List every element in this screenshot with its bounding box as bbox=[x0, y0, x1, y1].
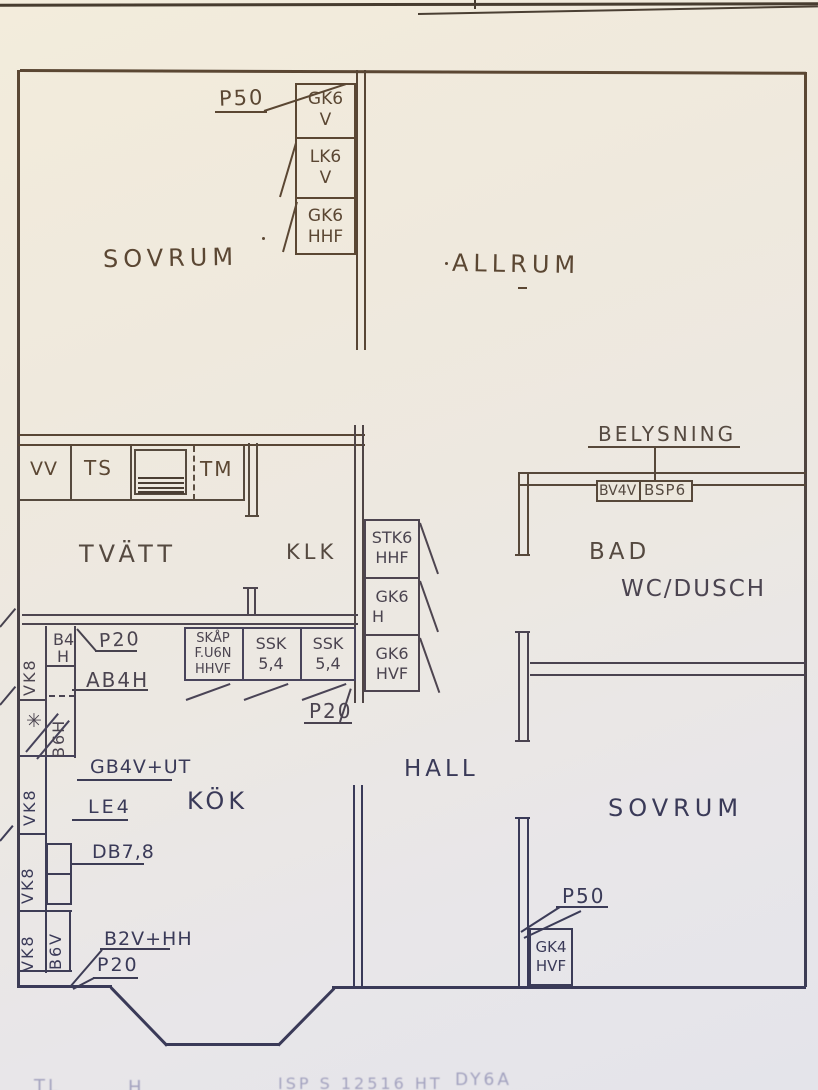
footer-fragment: ISP S 12516 HT bbox=[278, 1074, 443, 1090]
code-vk8-4: VK8 bbox=[20, 916, 36, 972]
counter-edge bbox=[22, 623, 358, 625]
circuit-code-bv4v: BV4V bbox=[599, 484, 636, 498]
wall-sovrum-allrum bbox=[364, 70, 366, 350]
cabinet-code: HHF bbox=[308, 227, 343, 248]
cell-border-dashed bbox=[49, 695, 75, 699]
leader-line bbox=[419, 523, 439, 575]
wall-outer-bottom bbox=[19, 985, 112, 988]
leader-line bbox=[76, 628, 97, 651]
note-underline bbox=[588, 446, 740, 448]
wall-outer-top bbox=[20, 69, 806, 74]
callout-underline bbox=[95, 650, 137, 652]
room-label-hall: HALL bbox=[404, 758, 479, 781]
callout-p20-top-left: P20 bbox=[99, 630, 142, 651]
callout-underline bbox=[100, 948, 170, 950]
cabinet-gk6-hvf: GK6 HVF bbox=[366, 638, 418, 690]
callout-underline bbox=[304, 722, 352, 724]
cabinet-lk6-v: LK6 V bbox=[297, 141, 354, 195]
cabinet-code: V bbox=[320, 168, 332, 189]
vent-stub-cap bbox=[243, 587, 258, 589]
column-border bbox=[45, 626, 47, 756]
cabinet-gk6-h: GK6 H bbox=[366, 581, 418, 632]
vent-stub bbox=[254, 589, 256, 616]
cabinet-gk4-hvf: GK4 HVF bbox=[529, 928, 573, 986]
callout-gb4v-ut: GB4V+UT bbox=[90, 758, 191, 777]
cabinet-code: 5,4 bbox=[315, 654, 340, 674]
cabinet-ssk-1: SSK 5,4 bbox=[244, 629, 298, 679]
cell-border bbox=[20, 833, 47, 835]
cabinet-code: HHF bbox=[375, 548, 408, 568]
paper-edge-tick bbox=[474, 0, 476, 9]
wall-stub bbox=[527, 472, 529, 556]
code-b4-h: H bbox=[57, 649, 69, 665]
room-label-kok: KÖK bbox=[187, 789, 248, 813]
wall-stub bbox=[527, 632, 529, 742]
callout-p50-bottom: P50 bbox=[562, 886, 606, 906]
wall-stub-cap bbox=[515, 631, 530, 633]
cabinet-code: GK6 bbox=[308, 89, 343, 110]
wall-stub-cap bbox=[245, 515, 259, 517]
code-b6v: B6V bbox=[48, 916, 64, 970]
cabinet-code: HVF bbox=[536, 957, 566, 976]
callout-p20-bottom-left: P20 bbox=[97, 956, 139, 975]
wall-stub-cap bbox=[515, 740, 530, 742]
cabinet-code: SKÅP bbox=[196, 631, 230, 647]
wall-stub bbox=[256, 443, 258, 517]
cabinet-code: SSK bbox=[313, 634, 344, 654]
code-b6h: B6H bbox=[51, 704, 67, 758]
hatch-mark bbox=[186, 683, 231, 701]
callout-underline bbox=[72, 863, 144, 865]
code-vk8-1: VK8 bbox=[22, 636, 38, 696]
footer-fragment: TL bbox=[34, 1076, 61, 1090]
callout-underline bbox=[72, 689, 148, 691]
footer-fragment: H bbox=[128, 1077, 145, 1090]
wall-porch bbox=[110, 986, 168, 1046]
callout-ab4h: AB4H bbox=[86, 670, 149, 690]
wall-tvatt-top bbox=[18, 434, 365, 436]
wall-hall-left bbox=[361, 785, 363, 987]
wall-outer-right bbox=[804, 72, 807, 987]
cabinet-code: HVF bbox=[376, 664, 408, 684]
circuit-code-bsp6: BSP6 bbox=[644, 483, 686, 498]
leader-line bbox=[419, 638, 440, 693]
note-belysning: BELYSNING bbox=[598, 424, 736, 444]
room-label-sovrum-top: SOVRUM bbox=[103, 245, 238, 271]
sink-divider bbox=[46, 873, 72, 875]
dimension-tick bbox=[0, 608, 16, 628]
stray-mark bbox=[518, 287, 527, 289]
room-label-allrum: ALLRUM bbox=[452, 251, 581, 277]
code-vk8-2: VK8 bbox=[22, 766, 38, 826]
wall-porch bbox=[165, 1043, 279, 1046]
callout-db78: DB7,8 bbox=[92, 843, 155, 862]
room-label-sovrum-bottom: SOVRUM bbox=[608, 796, 743, 820]
wall-sovrum-top bbox=[530, 674, 806, 676]
machine-hatch bbox=[138, 482, 184, 484]
appliance-label-ts: TS bbox=[84, 458, 113, 478]
callout-underline bbox=[215, 111, 267, 113]
dimension-tick bbox=[0, 825, 14, 842]
room-label-klk: KLK bbox=[286, 542, 337, 563]
cabinet-stk6-hhf: STK6 HHF bbox=[366, 521, 418, 575]
cabinet-code: 5,4 bbox=[258, 654, 283, 674]
stray-mark bbox=[262, 237, 265, 240]
dimension-tick bbox=[0, 686, 16, 706]
cabinet-ssk-2: SSK 5,4 bbox=[302, 629, 354, 679]
callout-underline bbox=[556, 906, 608, 908]
cabinet-gk6-hhf: GK6 HHF bbox=[297, 201, 354, 253]
wall-stub-cap bbox=[515, 554, 530, 556]
callout-underline bbox=[93, 977, 138, 979]
cabinet-code: GK6 bbox=[375, 587, 408, 607]
circuit-box-divider bbox=[639, 480, 641, 502]
cabinet-code: LK6 bbox=[310, 147, 341, 168]
code-vk8-3: VK8 bbox=[20, 842, 36, 904]
appliance-label-vv: VV bbox=[30, 460, 58, 479]
wall-porch bbox=[277, 987, 335, 1046]
cabinet-divider bbox=[295, 197, 356, 199]
callout-le4: LE4 bbox=[88, 798, 132, 817]
wall-stub bbox=[248, 443, 250, 517]
cabinet-divider bbox=[364, 634, 420, 636]
cabinet-code: HHVF bbox=[195, 662, 231, 678]
wall-sovrum-top bbox=[530, 662, 806, 664]
callout-underline bbox=[72, 819, 128, 821]
code-b4: B4 bbox=[53, 632, 74, 648]
wall-outer-bottom bbox=[332, 986, 806, 989]
floor-plan-photo: GK6 V LK6 V GK6 HHF P50 SOVRUM ALLRUM VV… bbox=[0, 0, 818, 1090]
callout-underline bbox=[77, 779, 172, 781]
paper-edge-line bbox=[418, 5, 818, 15]
room-label-wc-dusch: WC/DUSCH bbox=[621, 578, 766, 601]
counter-bottom bbox=[20, 499, 244, 501]
room-label-bad: BAD bbox=[589, 541, 650, 564]
cell-border bbox=[69, 912, 71, 972]
cabinet-code: SSK bbox=[256, 634, 287, 654]
wall-stub-cap bbox=[515, 817, 530, 819]
stray-mark bbox=[445, 262, 448, 265]
cell-border bbox=[18, 910, 72, 912]
cell-divider bbox=[130, 446, 132, 501]
cabinet-code: GK4 bbox=[535, 938, 566, 957]
cabinet-code: F.U6N bbox=[194, 646, 231, 662]
room-label-tvatt: TVÄTT bbox=[79, 542, 177, 566]
leader-line bbox=[419, 581, 439, 633]
column-border bbox=[74, 626, 76, 758]
footer-fragment: DY6A bbox=[455, 1070, 512, 1090]
cell-divider-dashed bbox=[193, 446, 195, 500]
machine-hatch bbox=[138, 487, 184, 489]
wall-stub bbox=[518, 632, 520, 742]
wall-bad-top bbox=[519, 472, 806, 474]
cabinet-gk6-v: GK6 V bbox=[297, 85, 354, 135]
callout-p50-top: P50 bbox=[219, 87, 265, 110]
cell-divider bbox=[70, 446, 72, 501]
cabinet-divider bbox=[295, 137, 356, 139]
callout-b2v-hh: B2V+HH bbox=[104, 930, 193, 949]
paper-edge-line bbox=[0, 2, 818, 6]
cabinet-skap: SKÅP F.U6N HHVF bbox=[186, 629, 240, 679]
wall-sovrum-allrum bbox=[356, 70, 358, 350]
machine-hatch bbox=[138, 477, 184, 479]
vent-stub bbox=[247, 589, 249, 616]
cabinet-code: H bbox=[366, 607, 384, 627]
cabinet-code: GK6 bbox=[308, 206, 343, 227]
leader-line bbox=[654, 448, 656, 481]
cell-border bbox=[20, 699, 47, 701]
wall-hall-left bbox=[353, 785, 355, 987]
hatch-mark bbox=[244, 683, 289, 701]
wall-stub bbox=[518, 472, 520, 556]
cabinet-code: GK6 bbox=[375, 644, 408, 664]
star-symbol: ✳ bbox=[26, 712, 42, 731]
cabinet-code: STK6 bbox=[372, 528, 413, 548]
machine-hatch bbox=[138, 491, 184, 494]
counter-edge bbox=[22, 614, 358, 616]
cabinet-code: V bbox=[320, 110, 332, 131]
cell-divider bbox=[243, 446, 245, 501]
appliance-label-tm: TM bbox=[200, 459, 233, 479]
cabinet-divider bbox=[364, 577, 420, 579]
wall-stub bbox=[518, 818, 520, 986]
